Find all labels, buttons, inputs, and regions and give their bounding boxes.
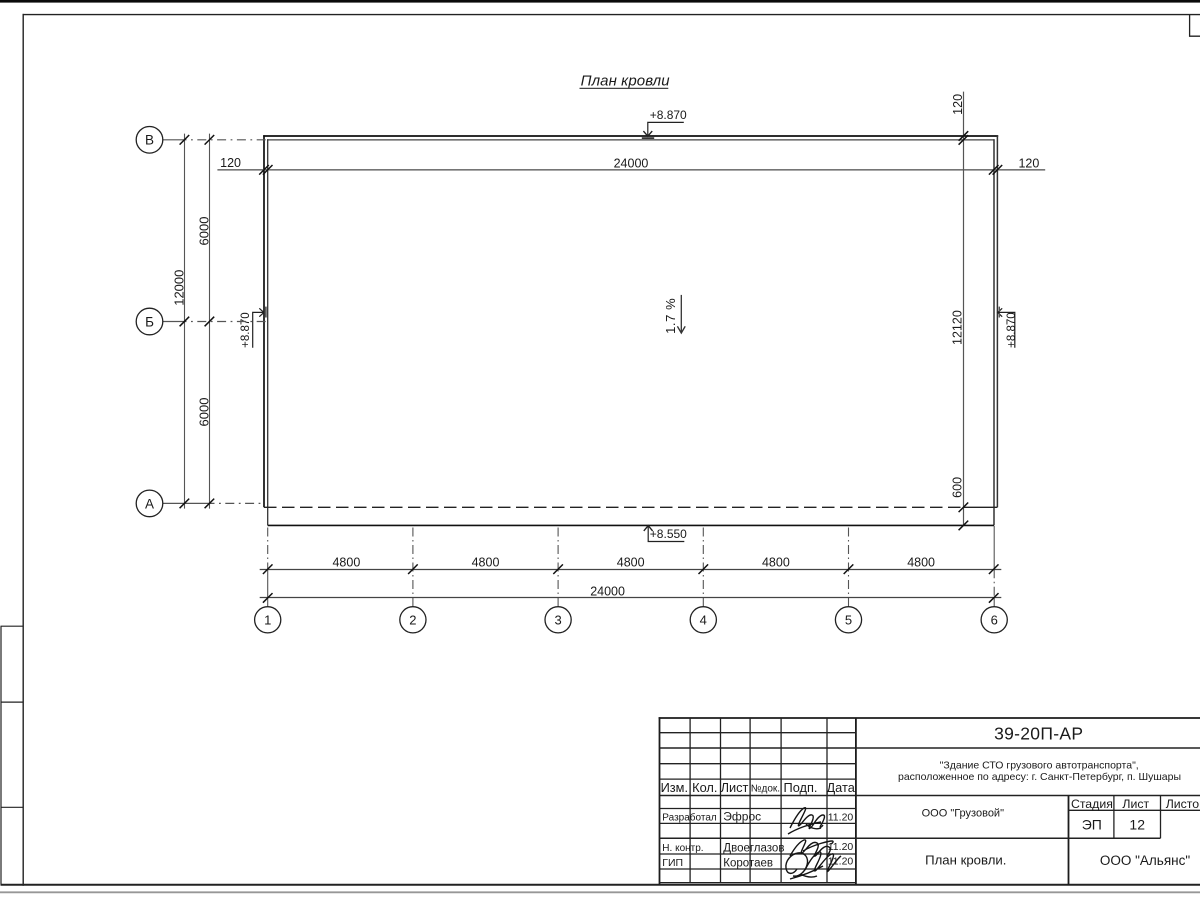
svg-text:Стадия: Стадия bbox=[1071, 797, 1113, 811]
svg-text:ООО "Альянс": ООО "Альянс" bbox=[1100, 853, 1190, 868]
svg-text:1.7 %: 1.7 % bbox=[663, 298, 678, 334]
svg-text:120: 120 bbox=[220, 156, 241, 170]
svg-text:+8.550: +8.550 bbox=[650, 527, 687, 541]
svg-text:Н. контр.: Н. контр. bbox=[662, 843, 703, 854]
svg-text:4800: 4800 bbox=[472, 555, 500, 569]
svg-text:расположенное по адресу: г. Са: расположенное по адресу: г. Санкт-Петерб… bbox=[898, 771, 1181, 783]
svg-text:Кол.: Кол. bbox=[692, 780, 717, 795]
svg-text:4800: 4800 bbox=[332, 555, 360, 569]
svg-text:+8.870: +8.870 bbox=[650, 108, 687, 122]
svg-text:39-20П-АР: 39-20П-АР bbox=[994, 724, 1083, 744]
svg-text:11.20: 11.20 bbox=[828, 811, 854, 823]
svg-text:3: 3 bbox=[554, 613, 561, 628]
svg-text:24000: 24000 bbox=[590, 585, 625, 599]
svg-text:6: 6 bbox=[991, 613, 998, 628]
svg-text:4800: 4800 bbox=[762, 555, 790, 569]
svg-text:12000: 12000 bbox=[171, 270, 186, 306]
svg-text:№док.: №док. bbox=[751, 783, 780, 794]
svg-text:Эфрос: Эфрос bbox=[723, 810, 761, 824]
svg-text:А: А bbox=[145, 496, 154, 511]
svg-text:Подп.: Подп. bbox=[784, 780, 818, 795]
svg-text:2: 2 bbox=[409, 613, 416, 628]
svg-text:12: 12 bbox=[1129, 817, 1145, 833]
svg-text:План кровли.: План кровли. bbox=[925, 853, 1006, 868]
svg-text:1: 1 bbox=[264, 613, 271, 628]
svg-text:4: 4 bbox=[700, 613, 707, 628]
svg-text:24000: 24000 bbox=[614, 156, 649, 170]
svg-text:ГИП: ГИП bbox=[662, 857, 683, 869]
svg-text:Б: Б bbox=[145, 314, 154, 329]
svg-text:+8.870: +8.870 bbox=[240, 312, 252, 348]
svg-text:ООО "Грузовой": ООО "Грузовой" bbox=[922, 808, 1004, 820]
svg-text:В: В bbox=[145, 133, 154, 148]
svg-text:11.20: 11.20 bbox=[828, 841, 854, 853]
svg-text:План кровли: План кровли bbox=[581, 72, 671, 89]
svg-text:6000: 6000 bbox=[196, 398, 211, 427]
svg-text:Разработал: Разработал bbox=[662, 811, 717, 823]
svg-text:+8.870: +8.870 bbox=[1006, 312, 1018, 348]
svg-text:Изм.: Изм. bbox=[661, 780, 688, 795]
svg-text:"Здание СТО грузового автотран: "Здание СТО грузового автотранспорта", bbox=[940, 759, 1139, 771]
svg-text:Коротаев: Коротаев bbox=[723, 857, 773, 869]
svg-text:5: 5 bbox=[845, 613, 852, 628]
svg-text:Дата: Дата bbox=[827, 780, 856, 795]
svg-text:Лист: Лист bbox=[721, 780, 749, 795]
svg-text:120: 120 bbox=[951, 94, 965, 115]
svg-text:ЭП: ЭП bbox=[1082, 817, 1102, 833]
svg-text:120: 120 bbox=[1018, 156, 1039, 170]
svg-text:Двоеглазов: Двоеглазов bbox=[723, 843, 784, 855]
svg-text:600: 600 bbox=[951, 477, 965, 498]
svg-text:12120: 12120 bbox=[951, 310, 965, 345]
svg-text:4800: 4800 bbox=[617, 555, 645, 569]
svg-text:4800: 4800 bbox=[907, 555, 935, 569]
svg-text:Лист: Лист bbox=[1122, 797, 1149, 811]
svg-text:Листов: Листов bbox=[1166, 797, 1200, 811]
svg-text:6000: 6000 bbox=[196, 217, 211, 246]
